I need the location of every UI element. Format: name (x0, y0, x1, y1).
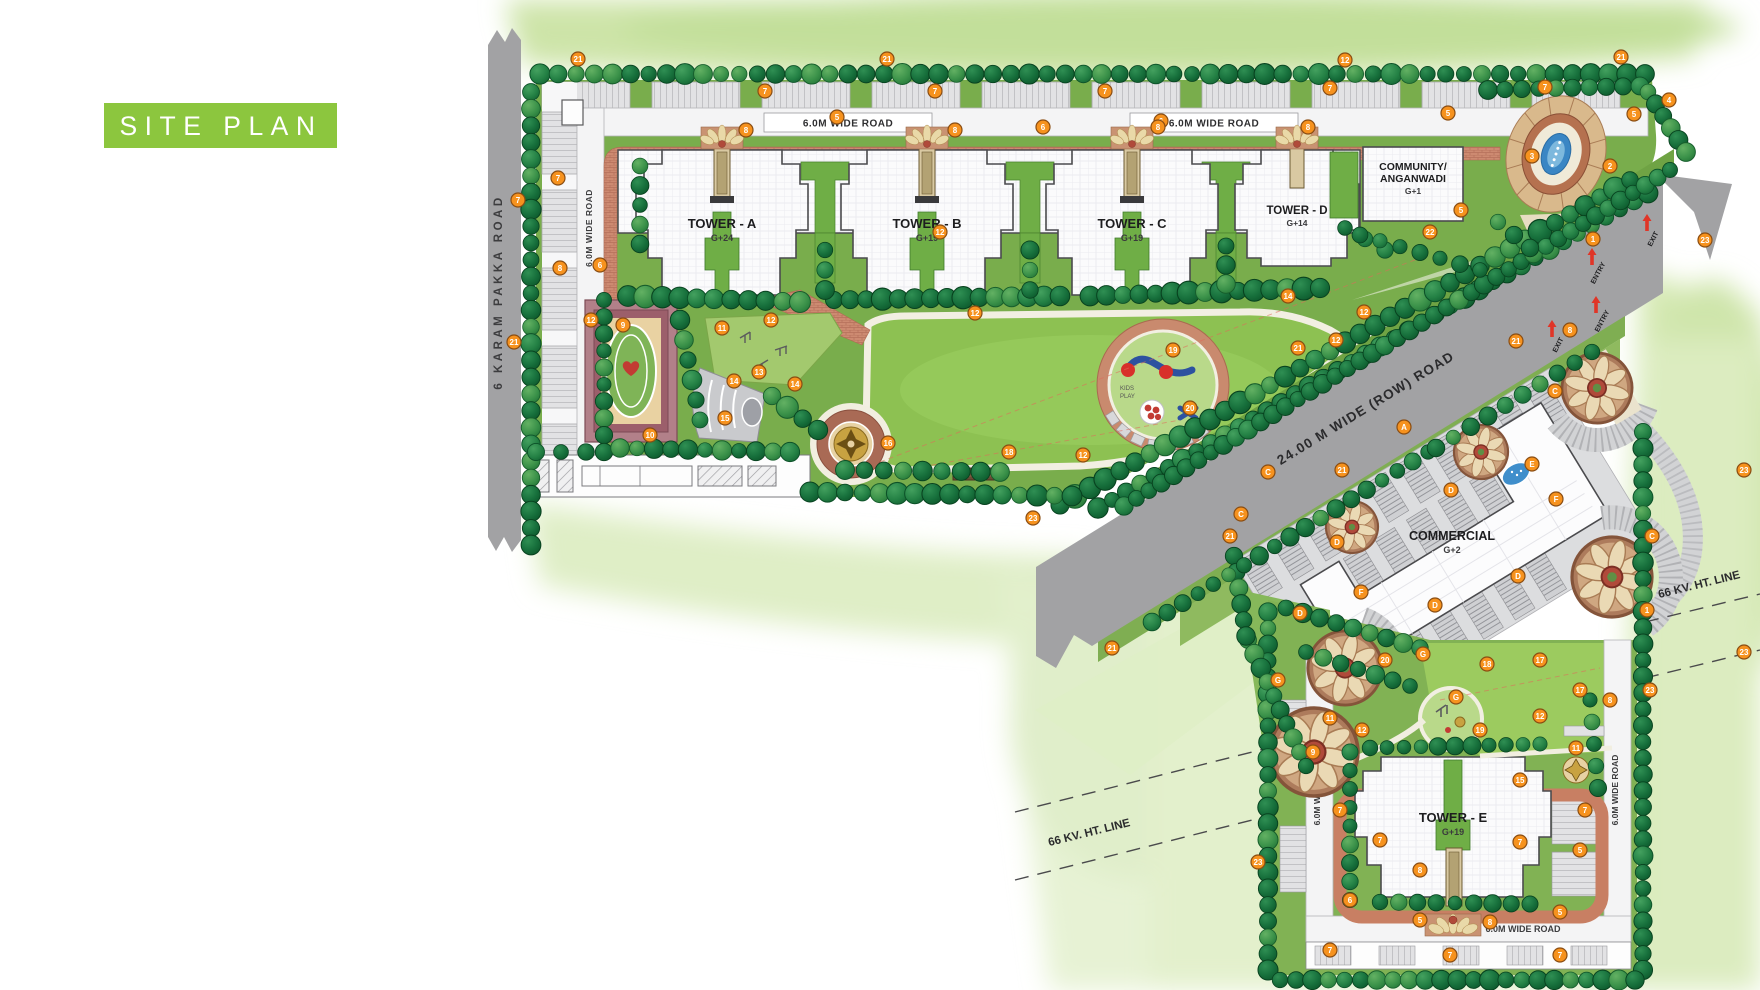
svg-text:21: 21 (1338, 466, 1347, 475)
svg-text:1: 1 (1591, 235, 1596, 244)
svg-text:TOWER - C: TOWER - C (1097, 216, 1167, 231)
svg-text:8: 8 (953, 126, 958, 135)
svg-text:12: 12 (936, 228, 945, 237)
svg-text:22: 22 (1426, 228, 1435, 237)
svg-text:17: 17 (1536, 656, 1545, 665)
svg-text:23: 23 (1740, 648, 1749, 657)
svg-text:18: 18 (1005, 448, 1014, 457)
svg-text:6: 6 (1348, 896, 1353, 905)
svg-text:6: 6 (1041, 123, 1046, 132)
svg-text:6: 6 (598, 261, 603, 270)
svg-text:G+1: G+1 (1405, 186, 1422, 196)
svg-text:F: F (1359, 588, 1364, 597)
svg-text:G: G (1275, 676, 1281, 685)
svg-text:7: 7 (1328, 84, 1333, 93)
svg-text:G+19: G+19 (1121, 233, 1143, 243)
svg-text:8: 8 (558, 264, 563, 273)
svg-text:F: F (1554, 495, 1559, 504)
svg-text:TOWER - A: TOWER - A (688, 216, 757, 231)
svg-text:G+14: G+14 (1286, 218, 1307, 228)
svg-text:C: C (1238, 510, 1244, 519)
svg-text:21: 21 (883, 55, 892, 64)
svg-text:20: 20 (1381, 656, 1390, 665)
svg-text:7: 7 (1543, 83, 1548, 92)
svg-text:COMMERCIAL: COMMERCIAL (1409, 529, 1495, 543)
svg-text:3: 3 (1530, 152, 1535, 161)
svg-text:7: 7 (1378, 836, 1383, 845)
svg-text:11: 11 (718, 324, 727, 333)
svg-text:19: 19 (1476, 726, 1485, 735)
svg-text:TOWER - E: TOWER - E (1419, 810, 1488, 825)
svg-text:7: 7 (1328, 946, 1333, 955)
svg-text:G+2: G+2 (1443, 545, 1460, 555)
svg-text:12: 12 (1360, 308, 1369, 317)
svg-text:6.0M WIDE ROAD: 6.0M WIDE ROAD (1610, 755, 1620, 826)
svg-text:18: 18 (1483, 660, 1492, 669)
svg-text:C: C (1265, 468, 1271, 477)
svg-text:5: 5 (1418, 916, 1423, 925)
svg-text:8: 8 (1488, 918, 1493, 927)
svg-text:E: E (1529, 460, 1535, 469)
svg-text:11: 11 (1572, 744, 1581, 753)
svg-text:21: 21 (574, 55, 583, 64)
svg-text:9: 9 (621, 321, 626, 330)
svg-text:6.0M WIDE ROAD: 6.0M WIDE ROAD (584, 189, 594, 267)
svg-text:TOWER - B: TOWER - B (892, 216, 961, 231)
svg-text:8: 8 (1306, 123, 1311, 132)
svg-text:5: 5 (1632, 110, 1637, 119)
svg-text:12: 12 (1079, 451, 1088, 460)
svg-text:20: 20 (1186, 404, 1195, 413)
svg-text:5: 5 (1578, 846, 1583, 855)
svg-text:7: 7 (933, 87, 938, 96)
svg-text:4: 4 (1667, 96, 1672, 105)
svg-text:23: 23 (1701, 236, 1710, 245)
svg-text:14: 14 (791, 380, 800, 389)
svg-text:12: 12 (1341, 56, 1350, 65)
svg-text:KIDS: KIDS (1120, 386, 1134, 392)
svg-text:8: 8 (1568, 326, 1573, 335)
svg-text:TOWER - D: TOWER - D (1266, 205, 1327, 217)
svg-text:6.0M WIDE ROAD: 6.0M WIDE ROAD (803, 119, 893, 130)
svg-text:G+19: G+19 (1442, 827, 1464, 837)
svg-text:8: 8 (1608, 696, 1613, 705)
svg-text:21: 21 (1512, 337, 1521, 346)
svg-text:5: 5 (835, 113, 840, 122)
svg-text:23: 23 (1646, 686, 1655, 695)
svg-text:11: 11 (1326, 714, 1335, 723)
svg-text:7: 7 (763, 87, 768, 96)
svg-text:G: G (1453, 693, 1459, 702)
svg-text:D: D (1334, 538, 1340, 547)
svg-text:23: 23 (1740, 466, 1749, 475)
svg-text:COMMUNITY/: COMMUNITY/ (1379, 161, 1447, 173)
svg-text:PLAY: PLAY (1120, 394, 1135, 400)
svg-text:12: 12 (587, 316, 596, 325)
svg-text:1: 1 (1645, 606, 1650, 615)
svg-text:15: 15 (721, 414, 730, 423)
svg-text:A: A (1401, 423, 1407, 432)
svg-text:6.0M WIDE ROAD: 6.0M WIDE ROAD (1169, 119, 1259, 130)
svg-text:C: C (1552, 387, 1558, 396)
svg-text:SITE PLAN: SITE PLAN (120, 111, 323, 141)
svg-text:9: 9 (1311, 748, 1316, 757)
svg-text:7: 7 (1448, 951, 1453, 960)
svg-text:2: 2 (1608, 162, 1613, 171)
svg-text:8: 8 (1156, 123, 1161, 132)
svg-text:14: 14 (730, 377, 739, 386)
svg-text:19: 19 (1169, 346, 1178, 355)
svg-text:6.0M WIDE ROAD: 6.0M WIDE ROAD (1485, 924, 1561, 934)
svg-text:12: 12 (1536, 712, 1545, 721)
svg-text:ANGANWADI: ANGANWADI (1380, 173, 1446, 185)
svg-text:5: 5 (1446, 109, 1451, 118)
svg-text:14: 14 (1284, 292, 1293, 301)
svg-text:12: 12 (1358, 726, 1367, 735)
svg-text:G: G (1420, 650, 1426, 659)
svg-text:21: 21 (510, 338, 519, 347)
svg-text:D: D (1297, 609, 1303, 618)
svg-text:5: 5 (1558, 908, 1563, 917)
svg-text:5: 5 (1459, 206, 1464, 215)
svg-text:21: 21 (1226, 532, 1235, 541)
svg-text:12: 12 (971, 309, 980, 318)
svg-text:16: 16 (884, 439, 893, 448)
svg-text:23: 23 (1254, 858, 1263, 867)
svg-text:21: 21 (1294, 344, 1303, 353)
svg-text:23: 23 (1029, 514, 1038, 523)
svg-text:7: 7 (1338, 806, 1343, 815)
svg-text:17: 17 (1576, 686, 1585, 695)
svg-text:7: 7 (1558, 951, 1563, 960)
svg-text:10: 10 (646, 431, 655, 440)
svg-text:G+24: G+24 (711, 233, 733, 243)
svg-text:7: 7 (556, 174, 561, 183)
svg-text:7: 7 (1103, 87, 1108, 96)
svg-text:D: D (1515, 572, 1521, 581)
svg-text:12: 12 (1332, 336, 1341, 345)
svg-text:8: 8 (744, 126, 749, 135)
svg-text:7: 7 (516, 196, 521, 205)
svg-text:6 KARAM PAKKA ROAD: 6 KARAM PAKKA ROAD (493, 194, 505, 389)
svg-text:8: 8 (1418, 866, 1423, 875)
svg-text:D: D (1432, 601, 1438, 610)
svg-text:15: 15 (1516, 776, 1525, 785)
svg-text:C: C (1649, 532, 1655, 541)
svg-text:7: 7 (1518, 838, 1523, 847)
svg-text:D: D (1448, 486, 1454, 495)
svg-text:21: 21 (1108, 644, 1117, 653)
svg-text:7: 7 (1583, 806, 1588, 815)
svg-text:12: 12 (767, 316, 776, 325)
svg-text:13: 13 (755, 368, 764, 377)
svg-text:21: 21 (1617, 53, 1626, 62)
